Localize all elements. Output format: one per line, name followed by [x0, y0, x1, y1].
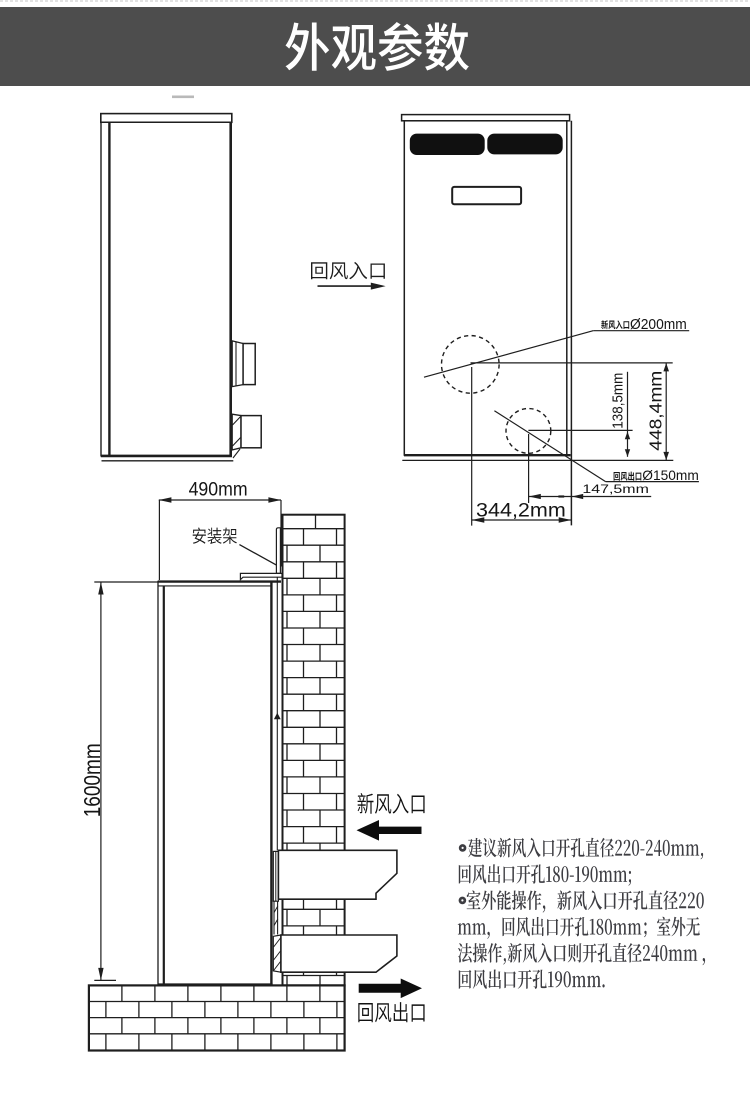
svg-text:344,2mm: 344,2mm — [476, 499, 566, 521]
svg-text:Ø150mm: Ø150mm — [642, 467, 699, 483]
svg-text:147,5mm: 147,5mm — [582, 482, 649, 496]
svg-text:138,5mm: 138,5mm — [609, 373, 626, 429]
svg-text:490mm: 490mm — [189, 479, 248, 501]
svg-text:448,4mm: 448,4mm — [646, 371, 666, 451]
svg-text:1600mm: 1600mm — [79, 743, 105, 817]
svg-text:Ø200mm: Ø200mm — [630, 316, 687, 333]
